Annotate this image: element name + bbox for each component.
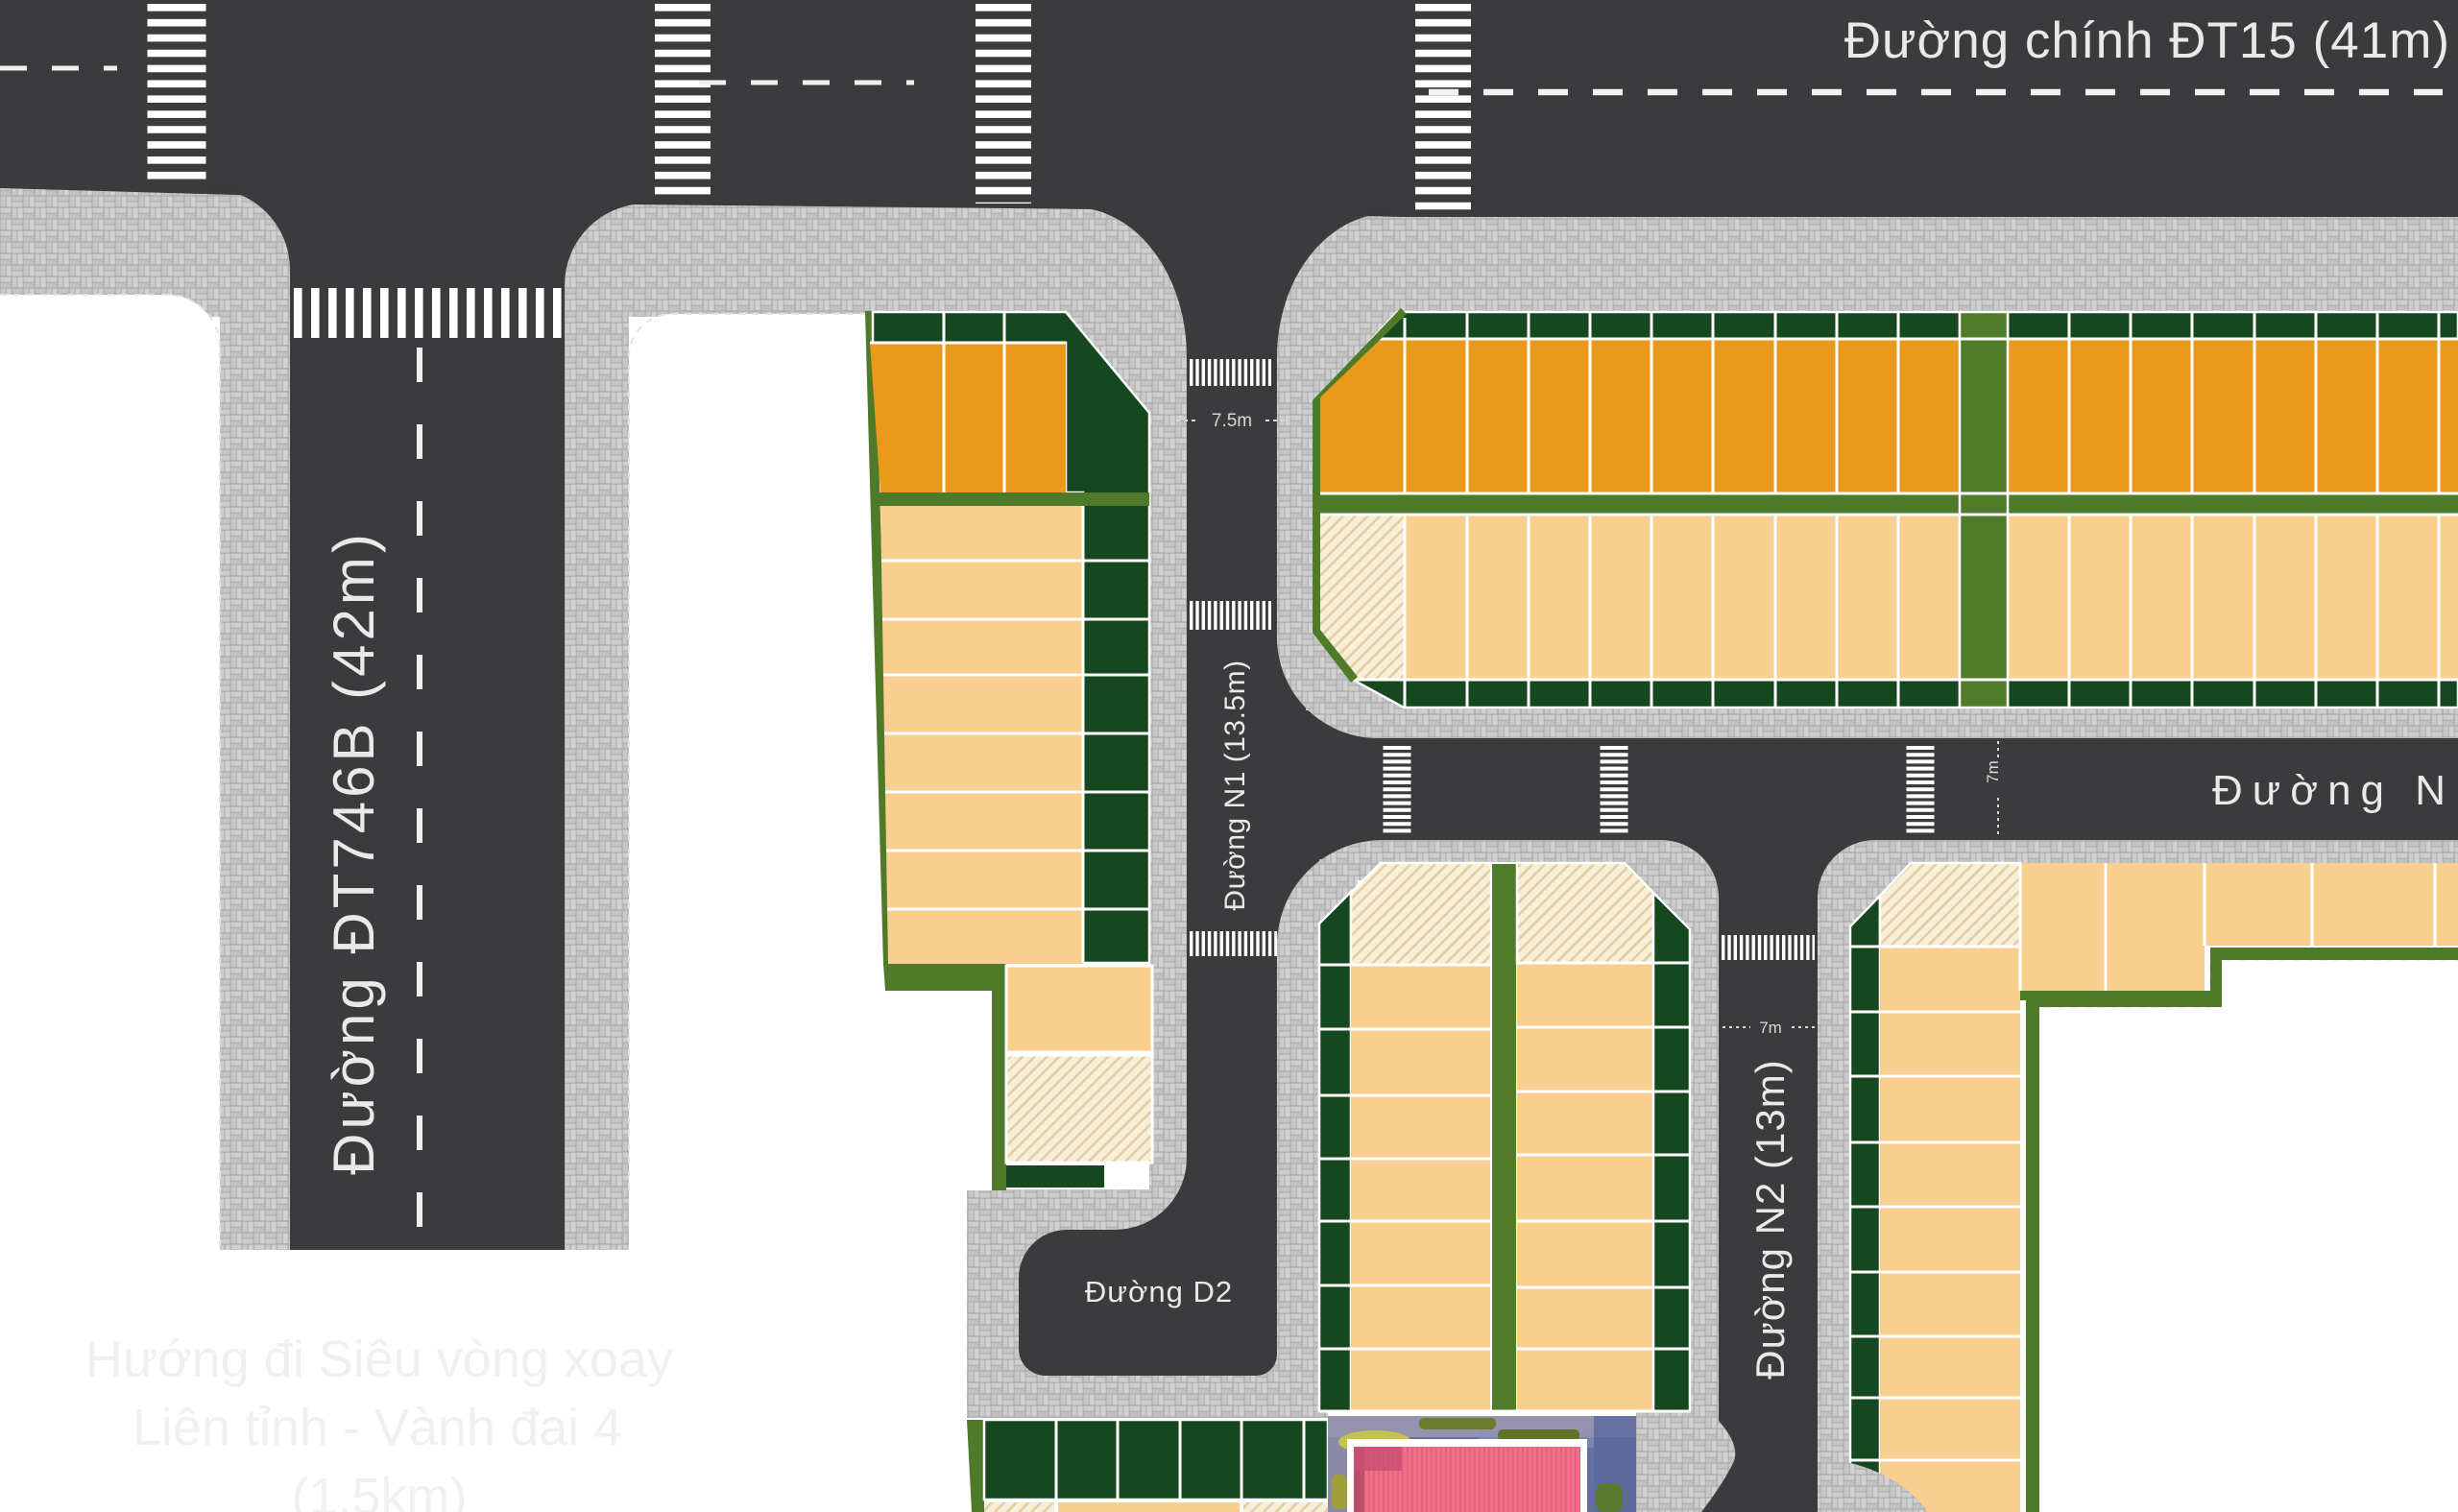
svg-text:Đường D2: Đường D2 <box>1085 1275 1233 1308</box>
svg-text:Đường N2 (13m): Đường N2 (13m) <box>1747 1059 1793 1379</box>
svg-text:7m: 7m <box>1984 760 2002 783</box>
svg-text:Liên tỉnh - Vành đai 4: Liên tỉnh - Vành đai 4 <box>133 1399 622 1456</box>
svg-text:7m: 7m <box>1759 1019 1782 1037</box>
svg-text:Đường N: Đường N <box>2212 767 2455 814</box>
svg-text:Đường chính ĐT15 (41m): Đường chính ĐT15 (41m) <box>1844 12 2450 69</box>
svg-text:Đường N1 (13.5m): Đường N1 (13.5m) <box>1219 660 1251 910</box>
svg-text:Đường ĐT746B (42m): Đường ĐT746B (42m) <box>322 530 386 1175</box>
svg-text:Hướng đi Siêu vòng xoay: Hướng đi Siêu vòng xoay <box>85 1331 673 1388</box>
svg-text:7.5m: 7.5m <box>1212 411 1252 431</box>
svg-text:(1,5km): (1,5km) <box>291 1468 467 1512</box>
